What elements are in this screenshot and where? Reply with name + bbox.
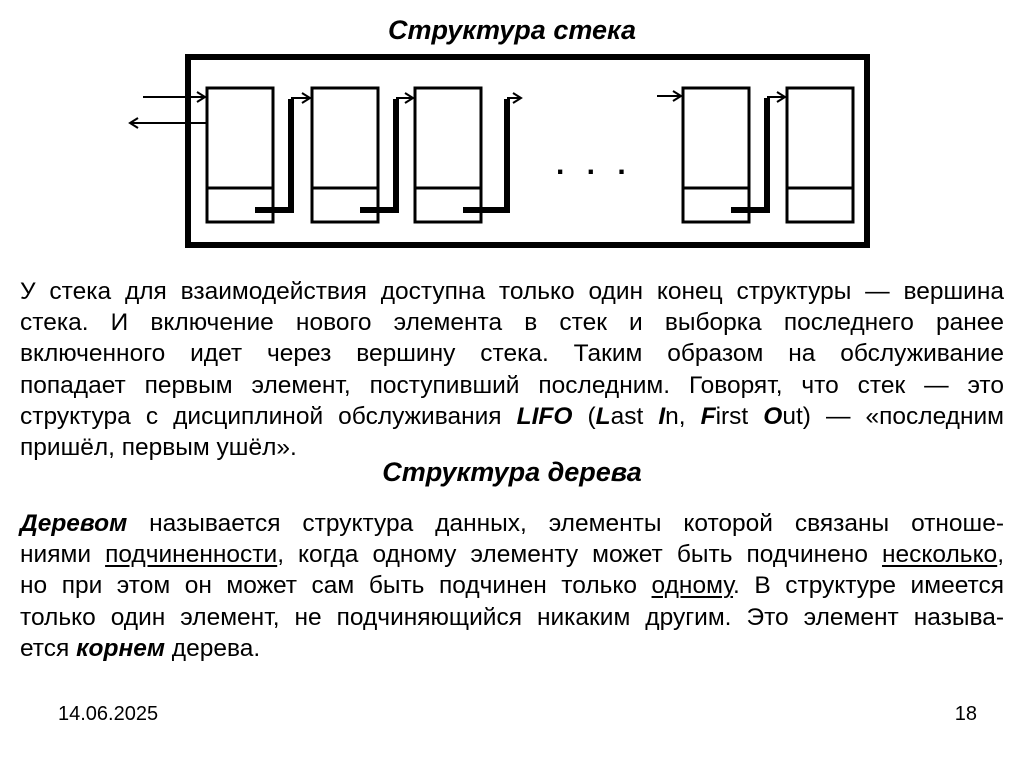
text-segment: , xyxy=(997,541,1004,568)
stack-paragraph: У стека для взаимодействия доступна толь… xyxy=(20,276,1004,463)
text-line: структура с дисциплиной обслуживания LIF… xyxy=(20,401,1004,432)
stack-node-3 xyxy=(415,88,481,222)
footer-page-number: 18 xyxy=(955,703,977,725)
text-segment: F xyxy=(701,403,716,430)
text-segment: LIFO xyxy=(517,403,573,430)
text-segment: ниями xyxy=(20,541,105,568)
text-line: но при этом он может сам быть подчинен т… xyxy=(20,570,1004,601)
text-segment: O xyxy=(763,403,782,430)
text-segment: называется структура данных, элементы ко… xyxy=(127,510,1004,537)
text-segment: попадает первым элемент, поступивший пос… xyxy=(20,372,1004,399)
text-segment: ut) — «последним xyxy=(782,403,1004,430)
text-segment: дерева. xyxy=(165,635,260,662)
stack-node-2 xyxy=(312,88,378,222)
text-segment: но при этом он может сам быть подчинен т… xyxy=(20,572,652,599)
text-segment: L xyxy=(596,403,611,430)
text-segment: ast xyxy=(611,403,659,430)
tree-paragraph: Деревом называется структура данных, эле… xyxy=(20,508,1004,664)
text-line: ниями подчиненности, когда одному элемен… xyxy=(20,539,1004,570)
text-segment: подчиненности xyxy=(105,541,277,568)
text-segment: ( xyxy=(572,403,595,430)
text-line: включенного идет через вершину стека. Та… xyxy=(20,338,1004,369)
text-segment: несколько xyxy=(882,541,997,568)
text-segment: включенного идет через вершину стека. Та… xyxy=(20,340,1004,367)
text-segment: irst xyxy=(716,403,764,430)
text-segment: структура с дисциплиной обслуживания xyxy=(20,403,517,430)
text-line: ется корнем дерева. xyxy=(20,633,1004,664)
text-line: Деревом называется структура данных, эле… xyxy=(20,508,1004,539)
text-segment: , когда одному элементу может быть подчи… xyxy=(277,541,882,568)
ellipsis-text: . . . xyxy=(556,148,633,181)
stack-node-5 xyxy=(787,88,853,222)
text-segment: одному xyxy=(652,572,733,599)
text-line: только один элемент, не подчиняющийся ни… xyxy=(20,602,1004,633)
text-segment: корнем xyxy=(76,635,165,662)
stack-diagram: . . . xyxy=(0,0,1024,262)
text-segment: n, xyxy=(665,403,700,430)
stack-node-4 xyxy=(683,88,749,222)
stack-node-1 xyxy=(207,88,273,222)
text-segment: У стека для взаимодействия доступна толь… xyxy=(20,278,1004,305)
footer-date: 14.06.2025 xyxy=(58,703,158,725)
text-line: стека. И включение нового элемента в сте… xyxy=(20,307,1004,338)
text-line: У стека для взаимодействия доступна толь… xyxy=(20,276,1004,307)
text-segment: ется xyxy=(20,635,76,662)
text-segment: Деревом xyxy=(20,510,127,537)
tree-section-title: Структура дерева xyxy=(0,456,1024,488)
text-segment: . В структуре имеется xyxy=(733,572,1004,599)
text-segment: только один элемент, не подчиняющийся ни… xyxy=(20,604,1004,631)
slide: Структура стека xyxy=(0,0,1024,767)
text-segment: стека. И включение нового элемента в сте… xyxy=(20,309,1004,336)
text-line: попадает первым элемент, поступивший пос… xyxy=(20,370,1004,401)
